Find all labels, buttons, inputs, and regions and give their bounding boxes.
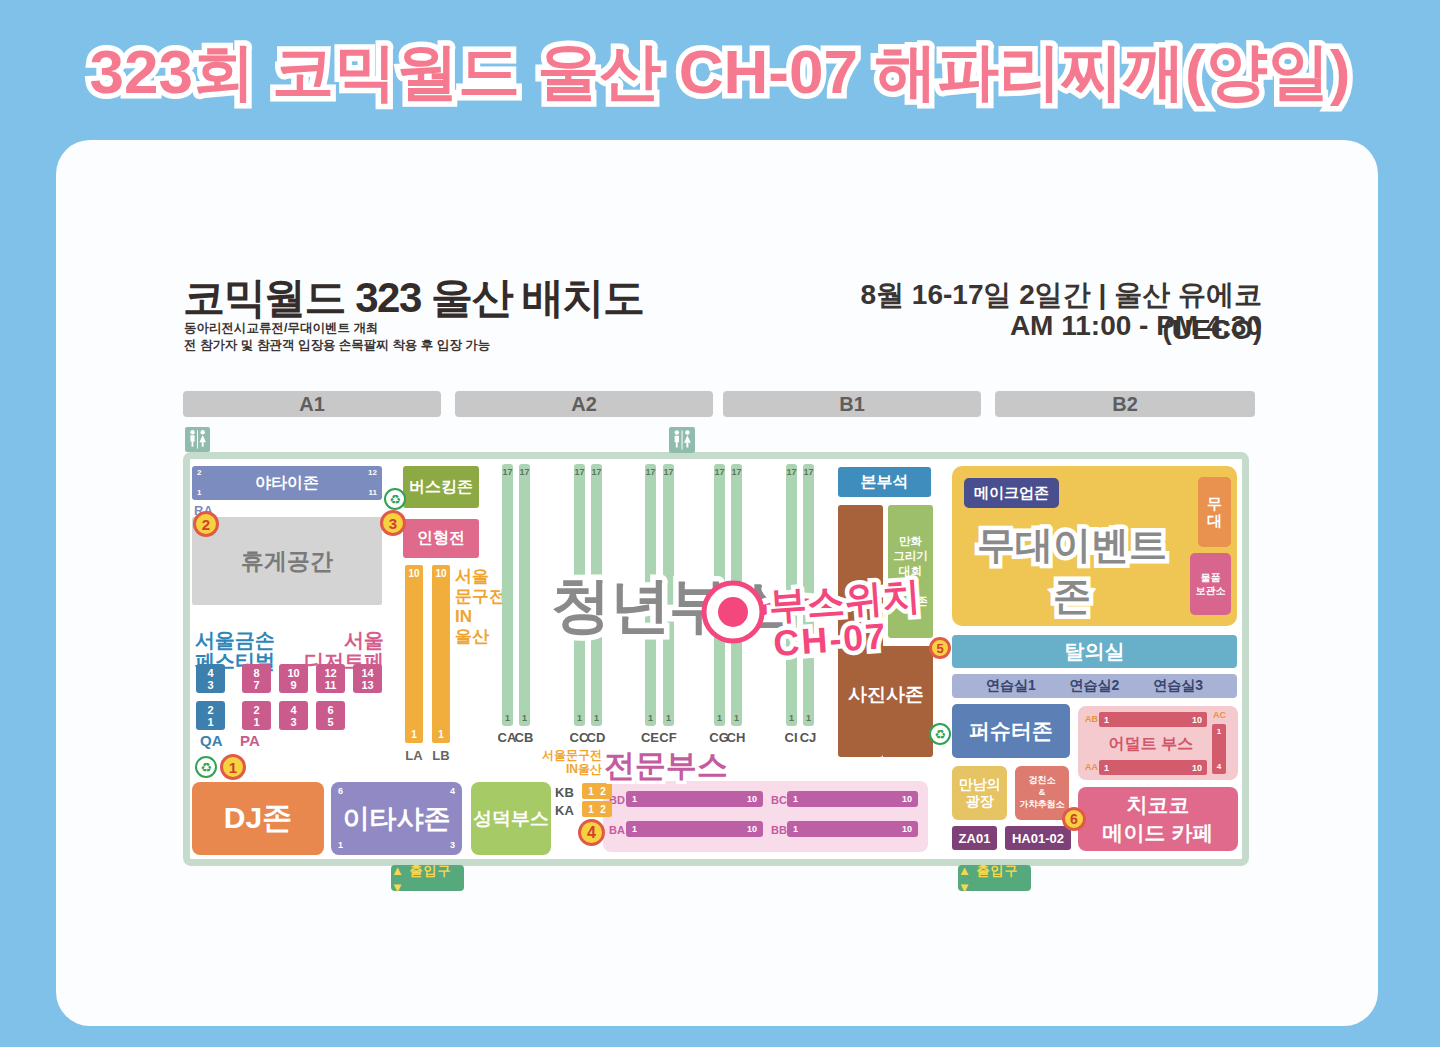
booth-number-tr: 12 [368,469,377,477]
booth-number-tl: 2 [197,469,201,477]
booth-column-la: 10 1 [405,565,423,743]
booth-number-bl: 1 [197,489,201,497]
booth-number: 7 [253,679,259,691]
booth-number: 14 [361,667,373,679]
sticker-booth-code: CH-07 [772,615,889,665]
booth-number: 1 [1104,715,1109,725]
booth-number-bottom: 1 [438,729,444,740]
booth-number: 17 [731,467,741,477]
zone-rest-area: 휴게공간 [192,517,382,605]
zone-hq: 본부석 [838,467,931,497]
zone-yatai-label: 야타이존 [255,473,319,494]
booth-number: 1 [793,824,798,834]
booth-row-ka: 1 2 [582,801,612,817]
section-bar-a1: A1 [183,391,441,417]
booth-number: 9 [290,679,296,691]
row-label-ka: KA [555,803,574,818]
booth-pa-r2-2: 4 3 [279,701,308,730]
row-label-qa: QA [200,732,223,749]
event-time: AM 11:00 - PM 4:30 [762,310,1262,342]
booth-number: 1 [577,713,582,723]
toilet-icon [669,427,695,453]
zone-dj: DJ존 [192,782,324,855]
row-label-bb: BB [771,824,787,836]
booth-number: 1 [666,713,671,723]
booth-number: 1 [253,716,259,728]
column-label-ch: CH [725,730,747,745]
booth-column-lb: 10 1 [432,565,450,743]
booth-number-br: 3 [450,841,455,850]
booth-pa-r2-3: 6 5 [316,701,345,730]
practice-room-3: 연습실3 [1153,677,1203,695]
column-label-cd: CD [585,730,607,745]
zone-dressing-room: 탈의실 [952,635,1237,668]
zone-itasha: 6 4 1 3 이타샤존 [331,782,462,855]
zone-adult-label: 어덜트 부스 [1090,734,1212,755]
booth-row-ab: 1 10 [1099,712,1207,727]
booth-number: 3 [207,679,213,691]
circled-marker-5: 5 [929,637,951,659]
column-label-cb: CB [513,730,535,745]
booth-number: 17 [591,467,601,477]
booth-number: 4 [1217,762,1221,771]
booth-qa-2: 2 1 [196,701,225,730]
booth-row-bc: 1 10 [787,791,918,807]
circled-marker-1: 1 [220,754,246,780]
column-label-cj: CJ [797,730,819,745]
booth-number: 4 [290,704,296,716]
booth-column-ca: 171 [502,464,513,726]
column-label-la: LA [399,748,429,763]
circled-marker-6: 6 [1062,807,1086,831]
restroom-figures-icon [669,427,695,453]
booth-number: 1 [522,713,527,723]
booth-number: 1 [648,713,653,723]
zone-busking: 버스킹존 [403,466,479,508]
booth-number-tr: 4 [450,787,455,796]
row-label-ba: BA [609,824,625,836]
booth-number: 1 [789,713,794,723]
booth-number: 2 [253,704,259,716]
recycle-icon: ♻ [195,756,217,778]
circled-marker-2: 2 [193,511,219,537]
booth-number: 17 [502,467,512,477]
booth-number: 4 [207,667,213,679]
booth-number-tl: 6 [338,787,343,796]
booth-number: 1 [207,716,213,728]
booth-number: 2 [600,786,606,797]
zone-za01: ZA01 [952,826,997,850]
zone-stage: 무 대 [1198,477,1231,547]
booth-number: 1 [588,804,594,815]
map-subtitle-2: 전 참가자 및 참관객 입장용 손목팔찌 착용 후 입장 가능 [184,337,490,354]
booth-row-ba: 1 10 [626,821,763,837]
zone-pro-booth-title: 전문부스 [604,745,728,787]
booth-number: 1 [594,713,599,723]
booth-number: 17 [574,467,584,477]
section-bar-b1: B1 [723,391,981,417]
row-label-kb: KB [555,785,574,800]
column-label-lb: LB [426,748,456,763]
booth-number: 5 [327,716,333,728]
booth-number-top: 10 [435,568,446,579]
zone-photographer-label: 사진사존 [840,682,932,708]
restroom-figures-icon [185,427,210,452]
recycle-icon: ♻ [384,488,406,510]
zone-makeup: 메이크업존 [964,478,1059,508]
page-title: 323회 코믹월드 울산 CH-07 해파리찌깨(양일) [0,30,1440,114]
booth-row-bb: 1 10 [787,821,918,837]
booth-number: 17 [645,467,655,477]
booth-row-bd: 1 10 [626,791,763,807]
practice-room-2: 연습실2 [1070,677,1120,695]
toilet-icon [185,427,210,452]
zone-doll-show: 인형전 [403,519,479,558]
booth-number: 1 [793,794,798,804]
booth-pa-r1-1: 8 7 [242,664,271,693]
circled-marker-4: 4 [578,819,605,846]
booth-pa-r1-4: 14 13 [353,664,382,693]
booth-number: 17 [714,467,724,477]
zone-fursuiter: 퍼슈터존 [952,704,1070,758]
map-title: 코믹월드 323 울산 배치도 [183,270,644,326]
booth-number: 10 [1192,715,1202,725]
booth-number: 1 [717,713,722,723]
row-label-aa: AA [1085,762,1098,772]
exit-marker-right: ▲ 출입구 ▼ [958,865,1031,891]
booth-column-ac: 1 4 [1212,724,1226,774]
booth-number: 11 [325,679,337,691]
zone-ha01-02: HA01-02 [1005,826,1071,850]
booth-number: 1 [588,786,594,797]
booth-number: 12 [324,667,336,679]
zone-practice-rooms: 연습실1 연습실2 연습실3 [952,674,1237,698]
section-bar-a2: A2 [455,391,713,417]
booth-number: 10 [287,667,299,679]
booth-number: 10 [747,824,757,834]
booth-number: 10 [902,824,912,834]
booth-number: 17 [519,467,529,477]
booth-pa-r1-2: 10 9 [279,664,308,693]
booth-number: 1 [1104,763,1109,773]
booth-number-bl: 1 [338,841,343,850]
booth-number: 1 [734,713,739,723]
booth-number: 17 [663,467,673,477]
booth-number: 10 [902,794,912,804]
booth-number: 8 [253,667,259,679]
column-label-ac: AC [1213,710,1226,720]
row-label-ab: AB [1085,714,1098,724]
booth-number: 1 [632,794,637,804]
booth-number: 1 [806,713,811,723]
zone-itasha-label: 이타샤존 [343,801,451,837]
booth-number: 2 [207,704,213,716]
row-label-pa: PA [240,732,260,749]
booth-number: 2 [600,804,606,815]
booth-number-top: 10 [408,568,419,579]
exit-marker-left: ▲ 출입구 ▼ [391,865,464,891]
circled-marker-3: 3 [380,510,406,536]
column-label-cf: CF [657,730,679,745]
booth-pa-r2-1: 2 1 [242,701,271,730]
zone-gacha-draw: 겅친소 & 가챠추첨소 [1015,766,1069,820]
booth-number: 1 [505,713,510,723]
zone-storage: 물품 보관소 [1190,553,1231,615]
booth-number: 6 [327,704,333,716]
booth-qa-1: 4 3 [196,664,225,693]
zone-meeting-plaza: 만남의 광장 [952,766,1007,820]
zone-maid-cafe: 치코코 메이드 카페 [1078,787,1238,851]
practice-room-1: 연습실1 [986,677,1036,695]
label-stationery-in-ulsan: 서울문구전 IN울산 [528,748,602,777]
booth-number: 10 [1192,763,1202,773]
booth-number: 3 [290,716,296,728]
map-subtitle-1: 동아리전시교류전/무대이벤트 개최 [184,320,378,337]
label-seoul-stationery-side: 서울 문구전 IN 울산 [455,567,506,647]
zone-stage-event-label: 무대이벤트존 [962,520,1182,622]
booth-number: 10 [747,794,757,804]
booth-number: 17 [803,467,813,477]
booth-row-aa: 1 10 [1099,760,1207,775]
section-bar-b2: B2 [995,391,1255,417]
booth-number: 17 [786,467,796,477]
row-label-bc: BC [771,794,787,806]
booth-number: 1 [632,824,637,834]
booth-number-bottom: 1 [411,729,417,740]
booth-number-br: 11 [369,489,377,497]
zone-yatai: 2 12 1 11 야타이존 [192,466,382,500]
booth-number: 13 [361,679,373,691]
booth-pa-r1-3: 12 11 [316,664,345,693]
zone-seongdeok: 성덕부스 [471,782,551,855]
booth-column-cb: 171 [519,464,530,726]
recycle-icon: ♻ [929,723,951,745]
booth-number: 1 [1217,727,1221,736]
